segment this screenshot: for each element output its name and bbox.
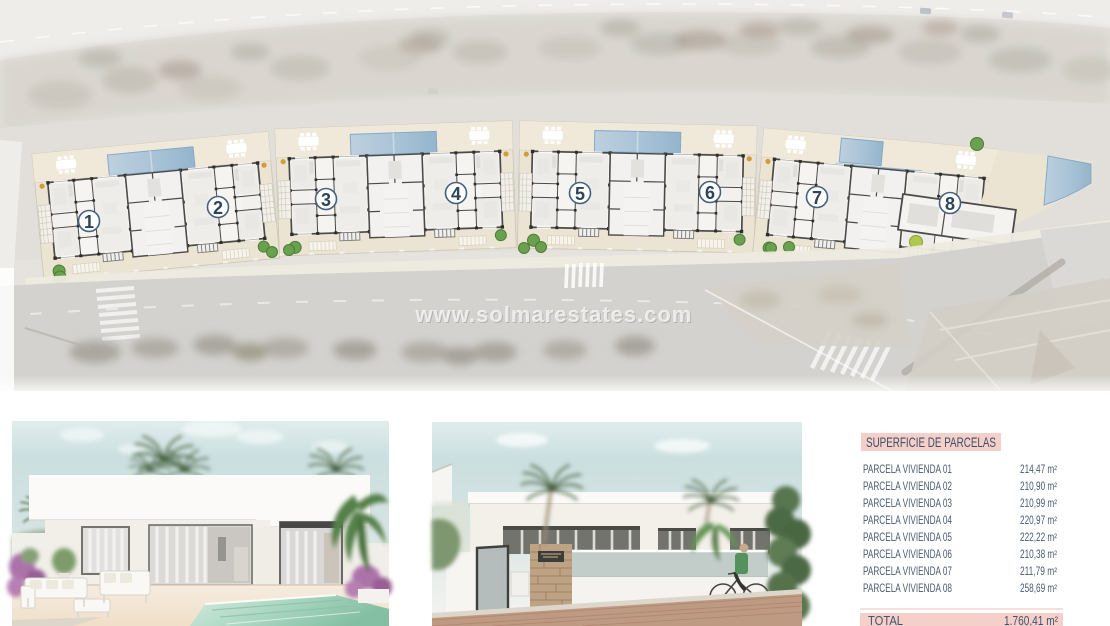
svg-text:TOTAL: TOTAL [868, 614, 903, 626]
svg-text:PARCELA VIVIENDA 08: PARCELA VIVIENDA 08 [863, 583, 952, 595]
svg-text:6: 6 [705, 183, 715, 203]
svg-text:214,47 m²: 214,47 m² [1020, 464, 1057, 476]
svg-text:211,79 m²: 211,79 m² [1020, 566, 1057, 578]
svg-text:PARCELA VIVIENDA 04: PARCELA VIVIENDA 04 [863, 515, 952, 527]
svg-text:8: 8 [945, 194, 955, 214]
svg-text:3: 3 [321, 190, 331, 210]
svg-text:210,90 m²: 210,90 m² [1020, 481, 1057, 493]
svg-text:PARCELA VIVIENDA 05: PARCELA VIVIENDA 05 [863, 532, 952, 544]
svg-text:SUPERFICIE DE PARCELAS: SUPERFICIE DE PARCELAS [866, 434, 996, 450]
svg-text:210,38 m²: 210,38 m² [1020, 549, 1057, 561]
svg-text:222,22 m²: 222,22 m² [1020, 532, 1057, 544]
svg-text:PARCELA VIVIENDA 03: PARCELA VIVIENDA 03 [863, 498, 952, 510]
svg-text:PARCELA VIVIENDA 07: PARCELA VIVIENDA 07 [863, 566, 952, 578]
svg-text:1: 1 [84, 212, 94, 232]
svg-text:4: 4 [451, 184, 461, 204]
svg-text:220,97 m²: 220,97 m² [1020, 515, 1057, 527]
svg-text:5: 5 [575, 184, 585, 204]
svg-text:2: 2 [213, 198, 223, 218]
svg-text:PARCELA VIVIENDA 01: PARCELA VIVIENDA 01 [863, 464, 952, 476]
svg-text:7: 7 [812, 188, 822, 208]
svg-text:www.solmarestates.com: www.solmarestates.com [415, 302, 693, 327]
svg-text:PARCELA VIVIENDA 06: PARCELA VIVIENDA 06 [863, 549, 952, 561]
svg-text:210,99 m²: 210,99 m² [1020, 498, 1057, 510]
svg-text:PARCELA VIVIENDA 02: PARCELA VIVIENDA 02 [863, 481, 952, 493]
svg-text:258,69 m²: 258,69 m² [1020, 583, 1057, 595]
svg-text:1.760,41 m²: 1.760,41 m² [1004, 614, 1058, 626]
